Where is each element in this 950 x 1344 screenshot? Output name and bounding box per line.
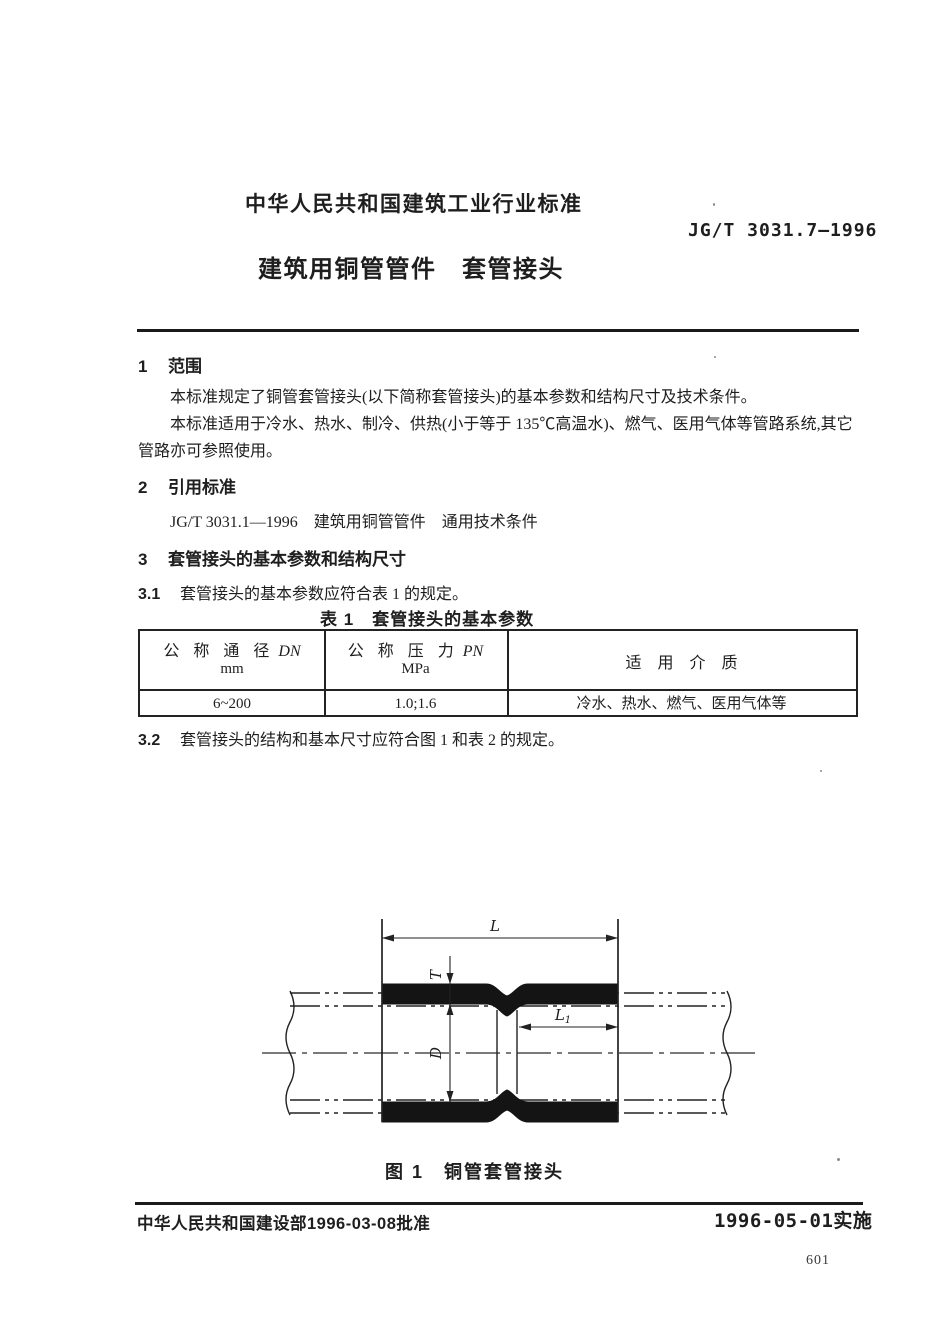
- scope-paragraph-1: 本标准规定了铜管套管接头(以下简称套管接头)的基本参数和结构尺寸及技术条件。: [138, 384, 866, 411]
- scan-speck: [820, 770, 822, 772]
- table-1-caption: 表 1 套管接头的基本参数: [320, 605, 534, 630]
- table-1: 公 称 通 径 DN mm 公 称 压 力 PN MPa 适 用 介 质 6~2…: [138, 629, 858, 717]
- dimension-L-arrow-right: [606, 935, 618, 942]
- clause-3-2: 3.2套管接头的结构和基本尺寸应符合图 1 和表 2 的规定。: [138, 726, 564, 750]
- clause-3-1-number: 3.1: [138, 586, 180, 604]
- dimension-L: L: [382, 917, 618, 942]
- section-1-title: 范围: [168, 357, 202, 376]
- title-divider-rule: [137, 329, 859, 332]
- scan-speck: [713, 203, 715, 206]
- table-1-cell-media: 冷水、热水、燃气、医用气体等: [507, 693, 856, 715]
- dimension-T-D: T D: [427, 956, 454, 1102]
- clause-3-1: 3.1套管接头的基本参数应符合表 1 的规定。: [138, 580, 468, 604]
- dimension-L1-label: L1: [554, 1006, 571, 1026]
- table-1-cell-dn: 6~200: [140, 693, 324, 715]
- clause-3-2-text: 套管接头的结构和基本尺寸应符合图 1 和表 2 的规定。: [180, 732, 564, 749]
- table-1-cell-pn: 1.0;1.6: [324, 693, 507, 715]
- referenced-standard-item: JG/T 3031.1—1996 建筑用铜管管件 通用技术条件: [170, 508, 538, 532]
- table-1-header-dn-unit: mm: [140, 661, 324, 678]
- page-number: 601: [806, 1253, 830, 1269]
- sleeve-top-wall: [382, 984, 618, 1016]
- section-2-title: 引用标准: [168, 478, 236, 497]
- sleeve-bottom-wall: [382, 1090, 618, 1122]
- clause-3-1-text: 套管接头的基本参数应符合表 1 的规定。: [180, 586, 468, 603]
- dimension-D-label: D: [427, 1047, 445, 1060]
- section-3-number: 3: [138, 550, 168, 570]
- section-2-number: 2: [138, 478, 168, 498]
- dimension-L1-arrow-right: [606, 1024, 618, 1031]
- figure-1-drawing: L T D L1: [240, 900, 780, 1150]
- table-1-header-pn-name: 公 称 压 力: [348, 643, 459, 660]
- section-3-title: 套管接头的基本参数和结构尺寸: [168, 550, 406, 569]
- dimension-L1: L1: [519, 1006, 618, 1031]
- footer-divider-rule: [135, 1202, 863, 1205]
- table-1-header-media: 适 用 介 质: [507, 649, 856, 673]
- standard-number: JG/T 3031.7—1996: [688, 220, 877, 241]
- table-1-header-pn: 公 称 压 力 PN MPa: [324, 637, 507, 678]
- table-1-header-dn-symbol: DN: [278, 643, 300, 660]
- table-1-header-divider: [140, 689, 856, 691]
- dimension-T-label: T: [427, 969, 445, 980]
- table-1-header-pn-unit: MPa: [324, 661, 507, 678]
- table-1-header-pn-symbol: PN: [463, 643, 483, 660]
- dimension-L-label: L: [489, 917, 500, 935]
- table-1-header-dn-name: 公 称 通 径: [163, 643, 274, 660]
- section-2-heading: 2引用标准: [138, 473, 236, 498]
- scan-speck: [714, 356, 716, 358]
- approval-line: 中华人民共和国建设部1996-03-08批准: [137, 1210, 430, 1234]
- clause-3-2-number: 3.2: [138, 732, 180, 750]
- implementation-line: 1996-05-01实施: [714, 1206, 872, 1233]
- scope-paragraph-2: 本标准适用于冷水、热水、制冷、供热(小于等于 135℃高温水)、燃气、医用气体等…: [138, 411, 866, 465]
- standard-document-page: 中华人民共和国建筑工业行业标准 JG/T 3031.7—1996 建筑用铜管管件…: [0, 0, 950, 1344]
- section-1-number: 1: [138, 357, 168, 377]
- section-1-heading: 1范围: [138, 352, 202, 377]
- section-3-heading: 3套管接头的基本参数和结构尺寸: [138, 545, 406, 570]
- standard-class-line: 中华人民共和国建筑工业行业标准: [245, 188, 583, 218]
- dimension-L-arrow-left: [382, 935, 394, 942]
- document-title: 建筑用铜管管件 套管接头: [258, 249, 564, 284]
- table-1-header-dn: 公 称 通 径 DN mm: [140, 637, 324, 678]
- scan-speck: [837, 1158, 840, 1161]
- dimension-L1-arrow-left: [519, 1024, 531, 1031]
- dimension-T-arrow-top: [447, 973, 454, 984]
- figure-1-caption: 图 1 铜管套管接头: [385, 1158, 564, 1184]
